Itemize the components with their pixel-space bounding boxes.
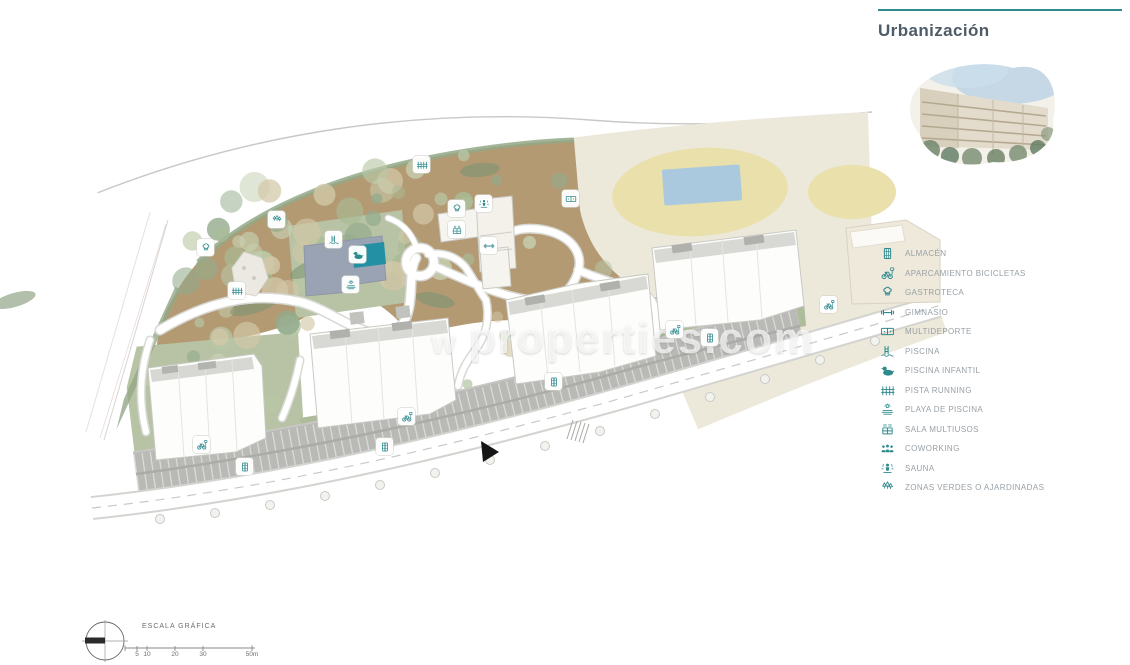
legend-item-sauna: SAUNA [880,459,1122,479]
chef-hat-icon [880,285,895,300]
scale-tick-10: 10 [143,651,150,658]
marker-almacen-3 [545,373,562,390]
marker-piscina-infantil [349,246,366,263]
legend-label: PISTA RUNNING [905,386,972,395]
marker-almacen-4 [701,329,718,346]
pool-ladder-icon [880,344,895,359]
marker-aparcamiento-bicicletas-4 [820,296,837,313]
marker-almacen-1 [236,458,253,475]
bicycle-icon [880,266,895,281]
legend-label: ZONAS VERDES O AJARDINADAS [905,483,1044,492]
legend-item-gimnasio: GIMNASIO [880,303,1122,323]
scale-bar: ESCALA GRÁFICA 5 10 20 30 50m [80,613,290,665]
marker-almacen-2 [376,438,393,455]
site-plan-page: w properties.com Urbanización [0,0,1130,665]
scale-tick-50m: 50m [246,651,259,658]
duck-icon [880,363,895,378]
legend-item-pista-running: PISTA RUNNING [880,381,1122,401]
marker-pista-running-2 [413,156,430,173]
marker-playa-de-piscina [342,276,359,293]
marker-zonas-verdes [268,211,285,228]
page-title: Urbanización [878,21,1122,41]
legend-label: GASTROTECA [905,288,964,297]
legend-rule [878,9,1122,11]
scale-tick-30: 30 [199,651,206,658]
legend-label: SAUNA [905,464,935,473]
legend-panel: Urbanización ALM [878,0,1122,41]
marker-multideporte [562,190,579,207]
marker-aparcamiento-bicicletas-1 [193,436,210,453]
urbanization-photo [898,50,1068,170]
legend-item-gastroteca: GASTROTECA [880,283,1122,303]
multiuse-hall-icon [880,422,895,437]
dumbbell-icon [880,305,895,320]
legend-item-piscina: PISCINA [880,342,1122,362]
legend-label: PISCINA [905,347,940,356]
legend-label: GIMNASIO [905,308,948,317]
legend-item-zonas-verdes: ZONAS VERDES O AJARDINADAS [880,478,1122,498]
marker-piscina [325,231,342,248]
watermark-text: properties.com [469,314,815,363]
marker-sala-multiusos [448,221,465,238]
sun-deck-icon [880,402,895,417]
legend-item-almacen: ALMACÉN [880,244,1122,264]
watermark-prefix: w [431,324,458,361]
marker-gastroteca-club [448,200,465,217]
legend-item-playa-de-piscina: PLAYA DE PISCINA [880,400,1122,420]
scale-bar-label: ESCALA GRÁFICA [142,623,216,630]
trees-icon [880,480,895,495]
legend-label: ALMACÉN [905,249,946,258]
legend-items: ALMACÉN APARCAMIENTO BICICLETAS GASTROTE… [880,244,1122,498]
legend-label: SALA MULTIUSOS [905,425,979,434]
legend-item-piscina-infantil: PISCINA INFANTIL [880,361,1122,381]
legend-label: MULTIDEPORTE [905,327,972,336]
marker-aparcamiento-bicicletas-2 [398,408,415,425]
legend-item-sala-multiusos: SALA MULTIUSOS [880,420,1122,440]
sauna-icon [880,461,895,476]
marker-gastroteca-park [197,239,214,256]
scale-tick-20: 20 [171,651,178,658]
marker-pista-running-1 [228,282,245,299]
marker-sauna [475,195,492,212]
legend-item-aparcamiento-bicicletas: APARCAMIENTO BICICLETAS [880,264,1122,284]
legend-label: APARCAMIENTO BICICLETAS [905,269,1026,278]
running-track-icon [880,383,895,398]
marker-gimnasio [480,237,497,254]
scale-tick-5: 5 [135,651,139,658]
legend-item-coworking: COWORKING [880,439,1122,459]
legend-label: PLAYA DE PISCINA [905,405,983,414]
sports-court-icon [880,324,895,339]
watermark: w properties.com [425,314,815,364]
legend-label: COWORKING [905,444,960,453]
legend-label: PISCINA INFANTIL [905,366,980,375]
legend-item-multideporte: MULTIDEPORTE [880,322,1122,342]
marker-aparcamiento-bicicletas-3 [666,321,683,338]
people-icon [880,441,895,456]
almacen-icon [880,246,895,261]
